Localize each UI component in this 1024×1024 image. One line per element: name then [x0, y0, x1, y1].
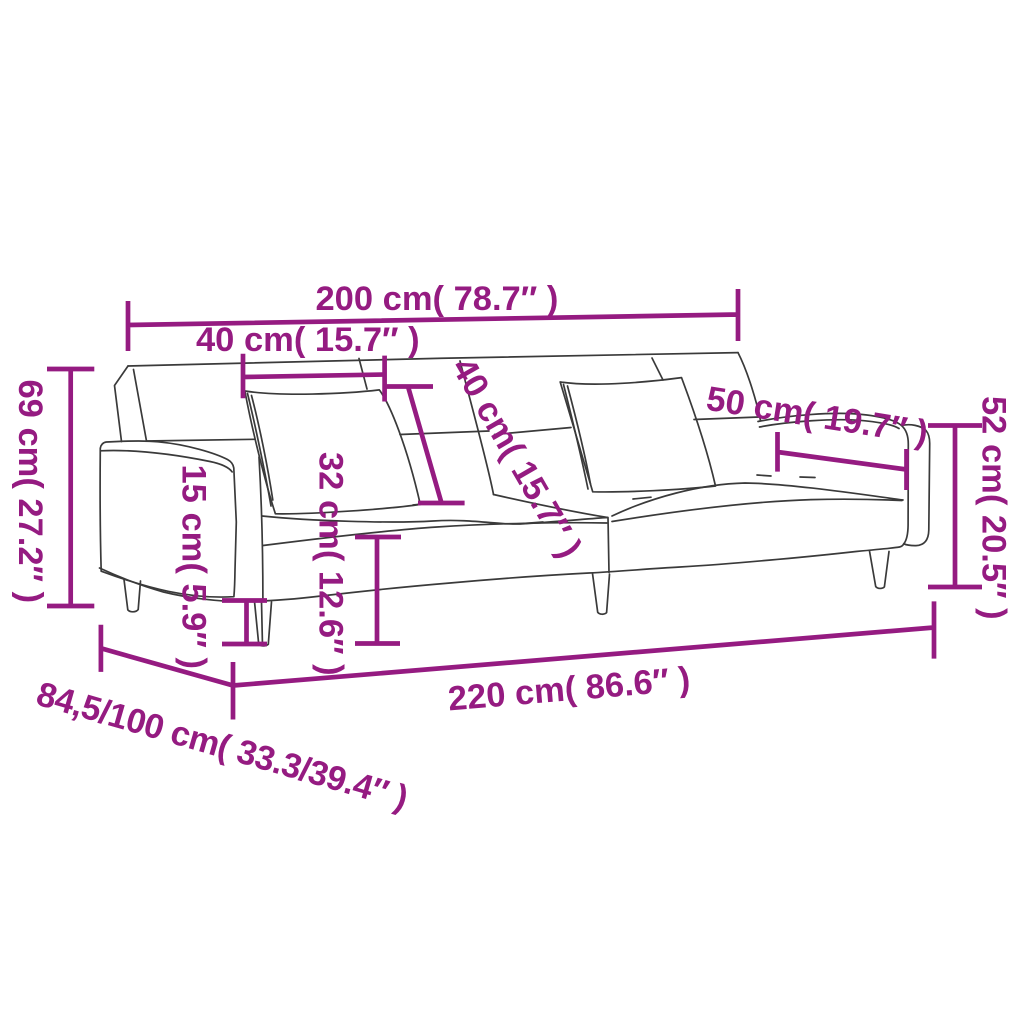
- svg-text:15 cm( 5.9″ ): 15 cm( 5.9″ ): [175, 465, 213, 669]
- svg-text:40 cm( 15.7″ ): 40 cm( 15.7″ ): [196, 321, 420, 359]
- svg-text:69 cm( 27.2″ ): 69 cm( 27.2″ ): [11, 380, 49, 604]
- svg-text:200 cm( 78.7″ ): 200 cm( 78.7″ ): [316, 280, 559, 318]
- svg-text:52 cm( 20.5″ ): 52 cm( 20.5″ ): [975, 396, 1013, 620]
- svg-text:32 cm( 12.6″ ): 32 cm( 12.6″ ): [312, 452, 350, 676]
